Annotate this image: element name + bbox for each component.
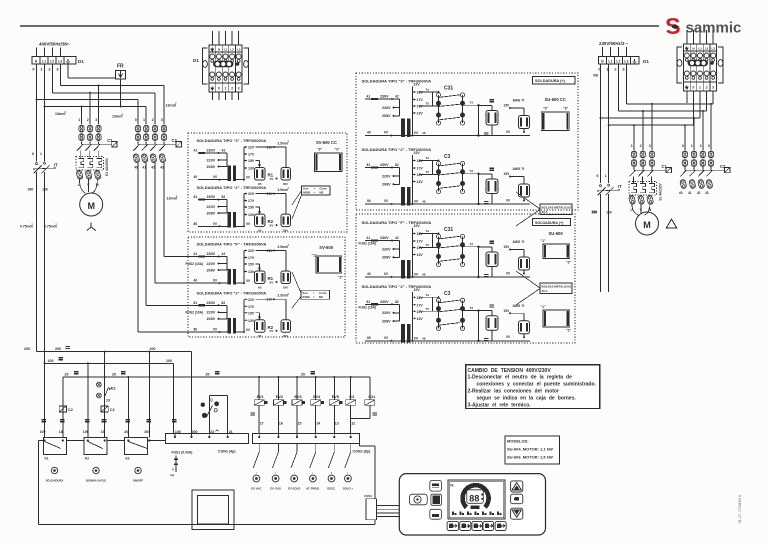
svg-text:20: 20 [65, 373, 69, 377]
svg-text:160: 160 [42, 188, 48, 192]
svg-text:L3: L3 [237, 47, 241, 51]
svg-text:22V: 22V [248, 298, 255, 302]
svg-text:IT: IT [54, 163, 58, 168]
svg-text:41: 41 [367, 95, 371, 99]
svg-text:DESC.: DESC. [327, 487, 336, 491]
svg-text:7a: 7a [426, 293, 430, 297]
svg-text:13V: 13V [417, 112, 424, 116]
svg-text:2: 2 [152, 118, 154, 122]
svg-text:230V/50Hz/3 ~: 230V/50Hz/3 ~ [599, 41, 629, 46]
svg-text:82: 82 [222, 301, 226, 305]
svg-text:200: 200 [144, 430, 150, 434]
svg-text:81: 81 [194, 195, 198, 199]
svg-text:3: 3 [712, 86, 714, 90]
svg-text:220V: 220V [382, 247, 391, 251]
svg-text:0: 0 [135, 118, 137, 122]
svg-text:C2: C2 [68, 407, 74, 412]
svg-text:1: 1 [225, 87, 227, 91]
svg-text:SOLO +: SOLO + [343, 487, 354, 491]
svg-text:73: 73 [470, 306, 474, 310]
svg-text:75: 75 [426, 307, 430, 311]
svg-text:2: 2 [706, 86, 708, 90]
svg-text:2.5mm: 2.5mm [278, 294, 289, 298]
svg-text:81: 81 [194, 301, 198, 305]
svg-text:segun se indica en la caja de: segun se indica en la caja de bornes. [468, 395, 577, 401]
svg-text:2: 2 [640, 144, 642, 148]
svg-text:208V: 208V [382, 183, 391, 187]
svg-text:20: 20 [301, 373, 305, 377]
svg-text:2.5mm: 2.5mm [278, 245, 289, 249]
svg-text:200: 200 [150, 347, 156, 351]
svg-text:ON: ON [283, 334, 288, 338]
svg-text:15V: 15V [504, 309, 511, 313]
svg-text:SOLDADURA: SOLDADURA [46, 479, 64, 483]
svg-text:48: 48 [422, 200, 426, 204]
svg-text:M: M [87, 201, 95, 211]
svg-text:13V: 13V [248, 319, 255, 323]
svg-text:M2: M2 [319, 295, 323, 299]
svg-text:EV3: EV3 [294, 395, 301, 399]
svg-text:SV-600 CC: SV-600 CC [316, 140, 337, 145]
svg-text:1: 1 [40, 152, 42, 156]
svg-text:65: 65 [258, 334, 262, 338]
svg-text:200: 200 [592, 210, 598, 214]
svg-text:15V: 15V [417, 173, 424, 177]
svg-text:FUS2 (10A): FUS2 (10A) [186, 262, 204, 266]
svg-text:40: 40 [194, 279, 198, 283]
svg-text:SOLDADURA TIPO "3" - TRF3/600V: SOLDADURA TIPO "3" - TRF3/600VA [362, 79, 432, 84]
svg-text:82: 82 [395, 163, 399, 167]
svg-text:CAMBIO DE TENSION 400V/230V: CAMBIO DE TENSION 400V/230V [468, 368, 552, 374]
svg-text:IT: IT [618, 184, 622, 189]
svg-text:C3: C3 [444, 154, 451, 160]
svg-text:EV GAS: EV GAS [270, 487, 281, 491]
svg-text:20: 20 [112, 373, 116, 377]
svg-text:41: 41 [194, 252, 198, 256]
svg-text:SU-600 CC: SU-600 CC [545, 97, 566, 102]
svg-text:L2: L2 [616, 60, 620, 64]
svg-text:conexiones y conectar el puent: conexiones y conectar el puente suminist… [468, 382, 597, 388]
svg-text:40: 40 [367, 131, 371, 135]
svg-text:VB: VB [593, 74, 598, 78]
svg-text:L2: L2 [230, 47, 234, 51]
svg-text:15V: 15V [417, 105, 424, 109]
svg-text:CON2 (8p): CON2 (8p) [353, 450, 371, 454]
svg-text:SOLDADURA TIPO "2" - TRF2/600V: SOLDADURA TIPO "2" - TRF2/600VA [197, 185, 267, 190]
svg-text:FR: FR [117, 64, 124, 70]
svg-text:2: 2 [231, 87, 233, 91]
svg-text:g: g [172, 467, 174, 471]
svg-text:15: 15 [298, 422, 302, 426]
svg-text:208V: 208V [382, 256, 391, 260]
svg-text:65: 65 [258, 285, 262, 289]
svg-text:1: 1 [143, 118, 145, 122]
svg-text:C31: C31 [368, 395, 375, 399]
svg-text:SOLDADURA TIPO "F" - TRF3/600V: SOLDADURA TIPO "F" - TRF3/600VA [197, 242, 267, 247]
svg-text:13V: 13V [248, 270, 255, 274]
svg-text:13V: 13V [417, 253, 424, 257]
svg-text:40: 40 [194, 175, 198, 179]
svg-text:43: 43 [160, 166, 164, 170]
svg-text:EV4: EV4 [313, 395, 321, 399]
svg-text:80: 80 [194, 328, 198, 332]
svg-text:21V: 21V [267, 249, 274, 253]
svg-text:18V: 18V [417, 296, 424, 300]
svg-text:220V: 220V [382, 106, 391, 110]
svg-text:N: N [218, 47, 220, 51]
svg-text:17V: 17V [248, 199, 255, 203]
svg-text:"1": "1" [541, 305, 546, 309]
svg-text:18V: 18V [417, 91, 424, 95]
svg-text:160: 160 [606, 211, 612, 215]
svg-text:42: 42 [222, 252, 226, 256]
svg-text:15V: 15V [417, 310, 424, 314]
svg-text:SOLDADURA TIPO "2" - TRF2/600V: SOLDADURA TIPO "2" - TRF2/600VA [362, 147, 432, 152]
svg-text:S1 4A/230V: S1 4A/230V [659, 183, 663, 201]
svg-text:SOLDADURA TIPO "2" - TRF2/600V: SOLDADURA TIPO "2" - TRF2/600VA [197, 291, 267, 296]
svg-text:3-Ajustar el rele termico.: 3-Ajustar el rele termico. [468, 402, 532, 408]
svg-text:2.5mm: 2.5mm [278, 188, 289, 192]
svg-text:ON: ON [283, 285, 288, 289]
svg-text:80: 80 [367, 199, 371, 203]
svg-text:48: 48 [422, 131, 426, 135]
svg-text:C31: C31 [444, 86, 453, 92]
svg-text:"3": "3" [335, 147, 340, 151]
svg-text:MODELOS:: MODELOS: [507, 439, 529, 444]
svg-text:AWG 7f: AWG 7f [513, 240, 526, 244]
svg-text:1: 1 [605, 174, 607, 178]
svg-text:ON: ON [283, 182, 288, 186]
svg-text:23: 23 [106, 399, 110, 403]
svg-text:3: 3 [238, 87, 240, 91]
svg-text:80: 80 [367, 336, 371, 340]
svg-text:15V: 15V [504, 172, 511, 176]
svg-text:C2: C2 [720, 164, 726, 169]
svg-text:12: 12 [351, 422, 355, 426]
svg-text:42: 42 [395, 236, 399, 240]
svg-text:260: 260 [28, 188, 34, 192]
svg-text:15V: 15V [417, 246, 424, 250]
svg-text:230V: 230V [380, 236, 389, 240]
svg-text:EV5: EV5 [332, 395, 339, 399]
svg-text:N: N [692, 46, 694, 50]
svg-text:43: 43 [705, 191, 709, 195]
svg-text:42: 42 [697, 191, 701, 195]
svg-text:20: 20 [206, 373, 210, 377]
svg-text:AWG 7f: AWG 7f [513, 304, 526, 308]
svg-text:48: 48 [422, 337, 426, 341]
svg-text:41: 41 [367, 236, 371, 240]
svg-text:208V: 208V [207, 211, 216, 215]
svg-text:220V: 220V [207, 158, 216, 162]
svg-text:230V: 230V [207, 195, 216, 199]
svg-text:15V: 15V [248, 263, 255, 267]
svg-text:"2": "2" [566, 261, 571, 265]
svg-text:81: 81 [367, 300, 371, 304]
svg-text:1: 1 [78, 118, 80, 122]
svg-text:64DB: 64DB [303, 295, 310, 299]
svg-text:E1 4A/400V: E1 4A/400V [105, 157, 109, 176]
svg-text:3: 3 [95, 118, 97, 122]
svg-text:73: 73 [258, 316, 262, 320]
svg-text:17V: 17V [417, 240, 424, 244]
svg-text:SOLDADURA (+): SOLDADURA (+) [535, 221, 564, 225]
svg-text:208V: 208V [382, 114, 391, 118]
svg-text:18V: 18V [417, 159, 424, 163]
svg-text:L1: L1 [608, 60, 612, 64]
svg-text:2: 2 [700, 144, 702, 148]
svg-text:D1: D1 [78, 59, 84, 64]
svg-text:41: 41 [688, 191, 692, 195]
svg-text:CON4: CON4 [364, 494, 372, 498]
svg-text:22: 22 [210, 430, 214, 434]
svg-text:L2: L2 [705, 46, 709, 50]
svg-text:400V/50Hz/3N~: 400V/50Hz/3N~ [39, 42, 71, 47]
svg-text:3: 3 [161, 118, 163, 122]
svg-text:K1: K1 [45, 457, 49, 461]
svg-text:220V: 220V [207, 205, 216, 209]
svg-text:1-Desconectar el neutro de la: 1-Desconectar el neutro de la regleta de [468, 375, 573, 381]
svg-text:"2": "2" [566, 329, 571, 333]
svg-text:73: 73 [470, 242, 474, 246]
svg-text:"2": "2" [338, 276, 343, 280]
svg-text:208V: 208V [382, 319, 391, 323]
svg-text:CON1 (4p): CON1 (4p) [218, 450, 236, 454]
svg-text:21V: 21V [267, 145, 274, 149]
svg-text:L1: L1 [42, 60, 46, 64]
svg-text:13: 13 [335, 422, 339, 426]
svg-text:L2: L2 [50, 60, 54, 64]
svg-text:"3": "3" [317, 147, 322, 151]
svg-text:230V: 230V [380, 163, 389, 167]
svg-text:100: 100 [166, 359, 172, 363]
svg-text:230V: 230V [380, 300, 389, 304]
svg-text:2-Realizar las conexiones del: 2-Realizar las conexiones del motor [468, 389, 559, 395]
svg-text:ON: ON [283, 228, 288, 232]
svg-text:EV1: EV1 [257, 395, 264, 399]
svg-text:220V: 220V [382, 174, 391, 178]
svg-text:230V: 230V [207, 301, 216, 305]
svg-text:7a: 7a [426, 88, 430, 92]
svg-text:17: 17 [260, 422, 264, 426]
svg-text:100: 100 [48, 359, 54, 363]
svg-text:tnp: tnp [170, 473, 175, 477]
svg-text:48: 48 [422, 273, 426, 277]
svg-text:40: 40 [367, 272, 371, 276]
svg-text:18: 18 [59, 430, 63, 434]
svg-text:SU-606. MOTOR: 1,5 kW: SU-606. MOTOR: 1,5 kW [507, 455, 553, 460]
svg-text:EV VAC: EV VAC [251, 487, 261, 491]
svg-text:17V: 17V [248, 305, 255, 309]
svg-text:220V: 220V [207, 262, 216, 266]
svg-text:200: 200 [192, 430, 198, 434]
svg-text:41: 41 [194, 149, 198, 153]
svg-text:D1: D1 [193, 58, 199, 63]
svg-text:200: 200 [24, 347, 30, 351]
svg-text:17V: 17V [417, 98, 424, 102]
svg-text:15V: 15V [248, 311, 255, 315]
svg-text:K3: K3 [126, 457, 130, 461]
svg-text:L1: L1 [224, 47, 228, 51]
svg-text:100: 100 [175, 430, 181, 434]
svg-text:15V: 15V [248, 159, 255, 163]
svg-text:E1: E1 [111, 386, 117, 391]
svg-text:C3: C3 [444, 291, 451, 297]
svg-text:M2: M2 [320, 191, 324, 195]
svg-text:2.5mm: 2.5mm [278, 141, 289, 145]
svg-text:14: 14 [316, 422, 320, 426]
svg-text:19: 19 [101, 430, 105, 434]
svg-text:BOLSAS METALICAS: BOLSAS METALICAS [542, 284, 572, 288]
svg-text:40: 40 [134, 166, 138, 170]
svg-text:73: 73 [470, 101, 474, 105]
svg-text:7a: 7a [426, 156, 430, 160]
svg-text:75: 75 [426, 102, 430, 106]
svg-text:220V: 220V [207, 311, 216, 315]
svg-text:81: 81 [367, 163, 371, 167]
svg-text:22V: 22V [414, 224, 421, 228]
svg-text:75: 75 [426, 170, 430, 174]
svg-text:40: 40 [679, 191, 683, 195]
svg-text:0: 0 [682, 144, 684, 148]
svg-text:15V: 15V [504, 245, 511, 249]
svg-text:FUS2 (10A): FUS2 (10A) [359, 305, 377, 309]
svg-text:22V: 22V [248, 249, 255, 253]
svg-text:BOLSAS METALICAS: BOLSAS METALICAS [542, 205, 572, 209]
svg-text:7a: 7a [426, 229, 430, 233]
svg-text:208V: 208V [207, 317, 216, 321]
svg-text:6: 6 [597, 174, 599, 178]
svg-text:AT. PROG.: AT. PROG. [306, 487, 320, 491]
svg-text:22V: 22V [414, 83, 421, 87]
svg-text:L3: L3 [711, 46, 715, 50]
svg-text:230V: 230V [207, 149, 216, 153]
svg-text:L3: L3 [624, 60, 628, 64]
svg-text:13V: 13V [248, 167, 255, 171]
svg-text:ON/OFF: ON/OFF [133, 479, 144, 483]
svg-text:AWG 7f: AWG 7f [513, 99, 526, 103]
svg-text:17V: 17V [417, 303, 424, 307]
svg-text:1: 1 [691, 144, 693, 148]
svg-text:42: 42 [151, 166, 155, 170]
svg-text:230V: 230V [380, 95, 389, 99]
svg-text:3: 3 [708, 144, 710, 148]
svg-text:22V: 22V [414, 151, 421, 155]
svg-text:L3: L3 [58, 60, 62, 64]
svg-text:208V: 208V [207, 165, 216, 169]
svg-text:13V: 13V [248, 213, 255, 217]
svg-text:6: 6 [32, 152, 34, 156]
svg-text:SU-600: SU-600 [549, 231, 564, 236]
svg-text:C1: C1 [662, 164, 668, 169]
svg-text:65: 65 [258, 228, 262, 232]
svg-text:7k: 7k [450, 483, 454, 487]
svg-text:C3: C3 [349, 395, 354, 399]
svg-text:AWG 7f: AWG 7f [513, 167, 526, 171]
svg-text:16: 16 [279, 422, 283, 426]
svg-text:230V: 230V [207, 252, 216, 256]
svg-text:17V: 17V [248, 153, 255, 157]
svg-text:"1": "1" [541, 239, 546, 243]
svg-text:208V: 208V [207, 268, 216, 272]
svg-text:"3": "3" [543, 107, 548, 111]
svg-text:82: 82 [222, 195, 226, 199]
svg-text:42: 42 [222, 149, 226, 153]
svg-text:SU-604. MOTOR: 1,1 kW: SU-604. MOTOR: 1,1 kW [507, 447, 553, 452]
svg-text:17V: 17V [248, 256, 255, 260]
svg-text:21: 21 [229, 430, 233, 434]
svg-text:SOLDADURA TIPO "3" - TRF3/600V: SOLDADURA TIPO "3" - TRF3/600VA [197, 138, 267, 143]
svg-text:SOLDADURA TIPO "2" - TRF2/600V: SOLDADURA TIPO "2" - TRF2/600VA [362, 284, 432, 289]
svg-text:01-17- 27/08/05 6: 01-17- 27/08/05 6 [738, 495, 742, 523]
svg-text:EV2: EV2 [276, 395, 283, 399]
svg-text:22V: 22V [248, 146, 255, 150]
svg-text:FUS1 (0.03A): FUS1 (0.03A) [172, 451, 193, 455]
svg-text:80: 80 [194, 222, 198, 226]
svg-text:73: 73 [258, 210, 262, 214]
svg-text:64DB: 64DB [303, 191, 310, 195]
svg-text:22V: 22V [414, 288, 421, 292]
svg-text:15V: 15V [504, 104, 511, 108]
svg-text:0: 0 [693, 86, 695, 90]
svg-text:EV SOLD: EV SOLD [288, 487, 300, 491]
svg-text:C31: C31 [444, 227, 453, 233]
svg-text:82: 82 [395, 300, 399, 304]
svg-text:220V: 220V [382, 311, 391, 315]
svg-text:"3": "3" [563, 107, 568, 111]
svg-text:1: 1 [699, 86, 701, 90]
svg-text:73: 73 [470, 169, 474, 173]
svg-text:13V: 13V [417, 180, 424, 184]
svg-text:C2: C2 [172, 138, 178, 143]
svg-text:21V: 21V [267, 192, 274, 196]
svg-text:73: 73 [258, 163, 262, 167]
svg-text:13V: 13V [417, 317, 424, 321]
svg-text:75: 75 [426, 243, 430, 247]
svg-text:20: 20 [124, 430, 128, 434]
svg-text:40 A: 40 A [542, 289, 549, 293]
svg-text:2: 2 [87, 118, 89, 122]
svg-text:3: 3 [649, 144, 651, 148]
svg-text:D1: D1 [643, 59, 649, 64]
svg-text:15V: 15V [248, 206, 255, 210]
svg-text:BOMBA VACIO: BOMBA VACIO [86, 479, 107, 483]
svg-text:22V: 22V [248, 192, 255, 196]
svg-text:SV-600: SV-600 [319, 245, 333, 250]
svg-text:21V: 21V [267, 298, 274, 302]
svg-text:0: 0 [218, 87, 220, 91]
svg-text:88: 88 [469, 493, 479, 503]
svg-text:FUS2 (10A): FUS2 (10A) [359, 242, 377, 246]
svg-text:18V: 18V [417, 232, 424, 236]
svg-text:C1: C1 [107, 138, 113, 143]
svg-text:SOLDADURA TIPO "F" - TRF3/600V: SOLDADURA TIPO "F" - TRF3/600VA [362, 220, 432, 225]
svg-text:1: 1 [631, 144, 633, 148]
svg-text:K2: K2 [85, 457, 89, 461]
svg-text:17V: 17V [417, 167, 424, 171]
svg-text:C1: C1 [110, 407, 116, 412]
svg-text:42: 42 [395, 95, 399, 99]
svg-text:41: 41 [142, 166, 146, 170]
svg-text:200: 200 [55, 347, 61, 351]
svg-text:FUS2 (10A): FUS2 (10A) [186, 311, 204, 315]
svg-text:M: M [643, 220, 651, 230]
svg-text:73: 73 [258, 267, 262, 271]
svg-text:SOLDADURA (+): SOLDADURA (+) [535, 79, 566, 83]
svg-text:40 A: 40 A [542, 210, 549, 214]
svg-text:L1: L1 [698, 46, 702, 50]
